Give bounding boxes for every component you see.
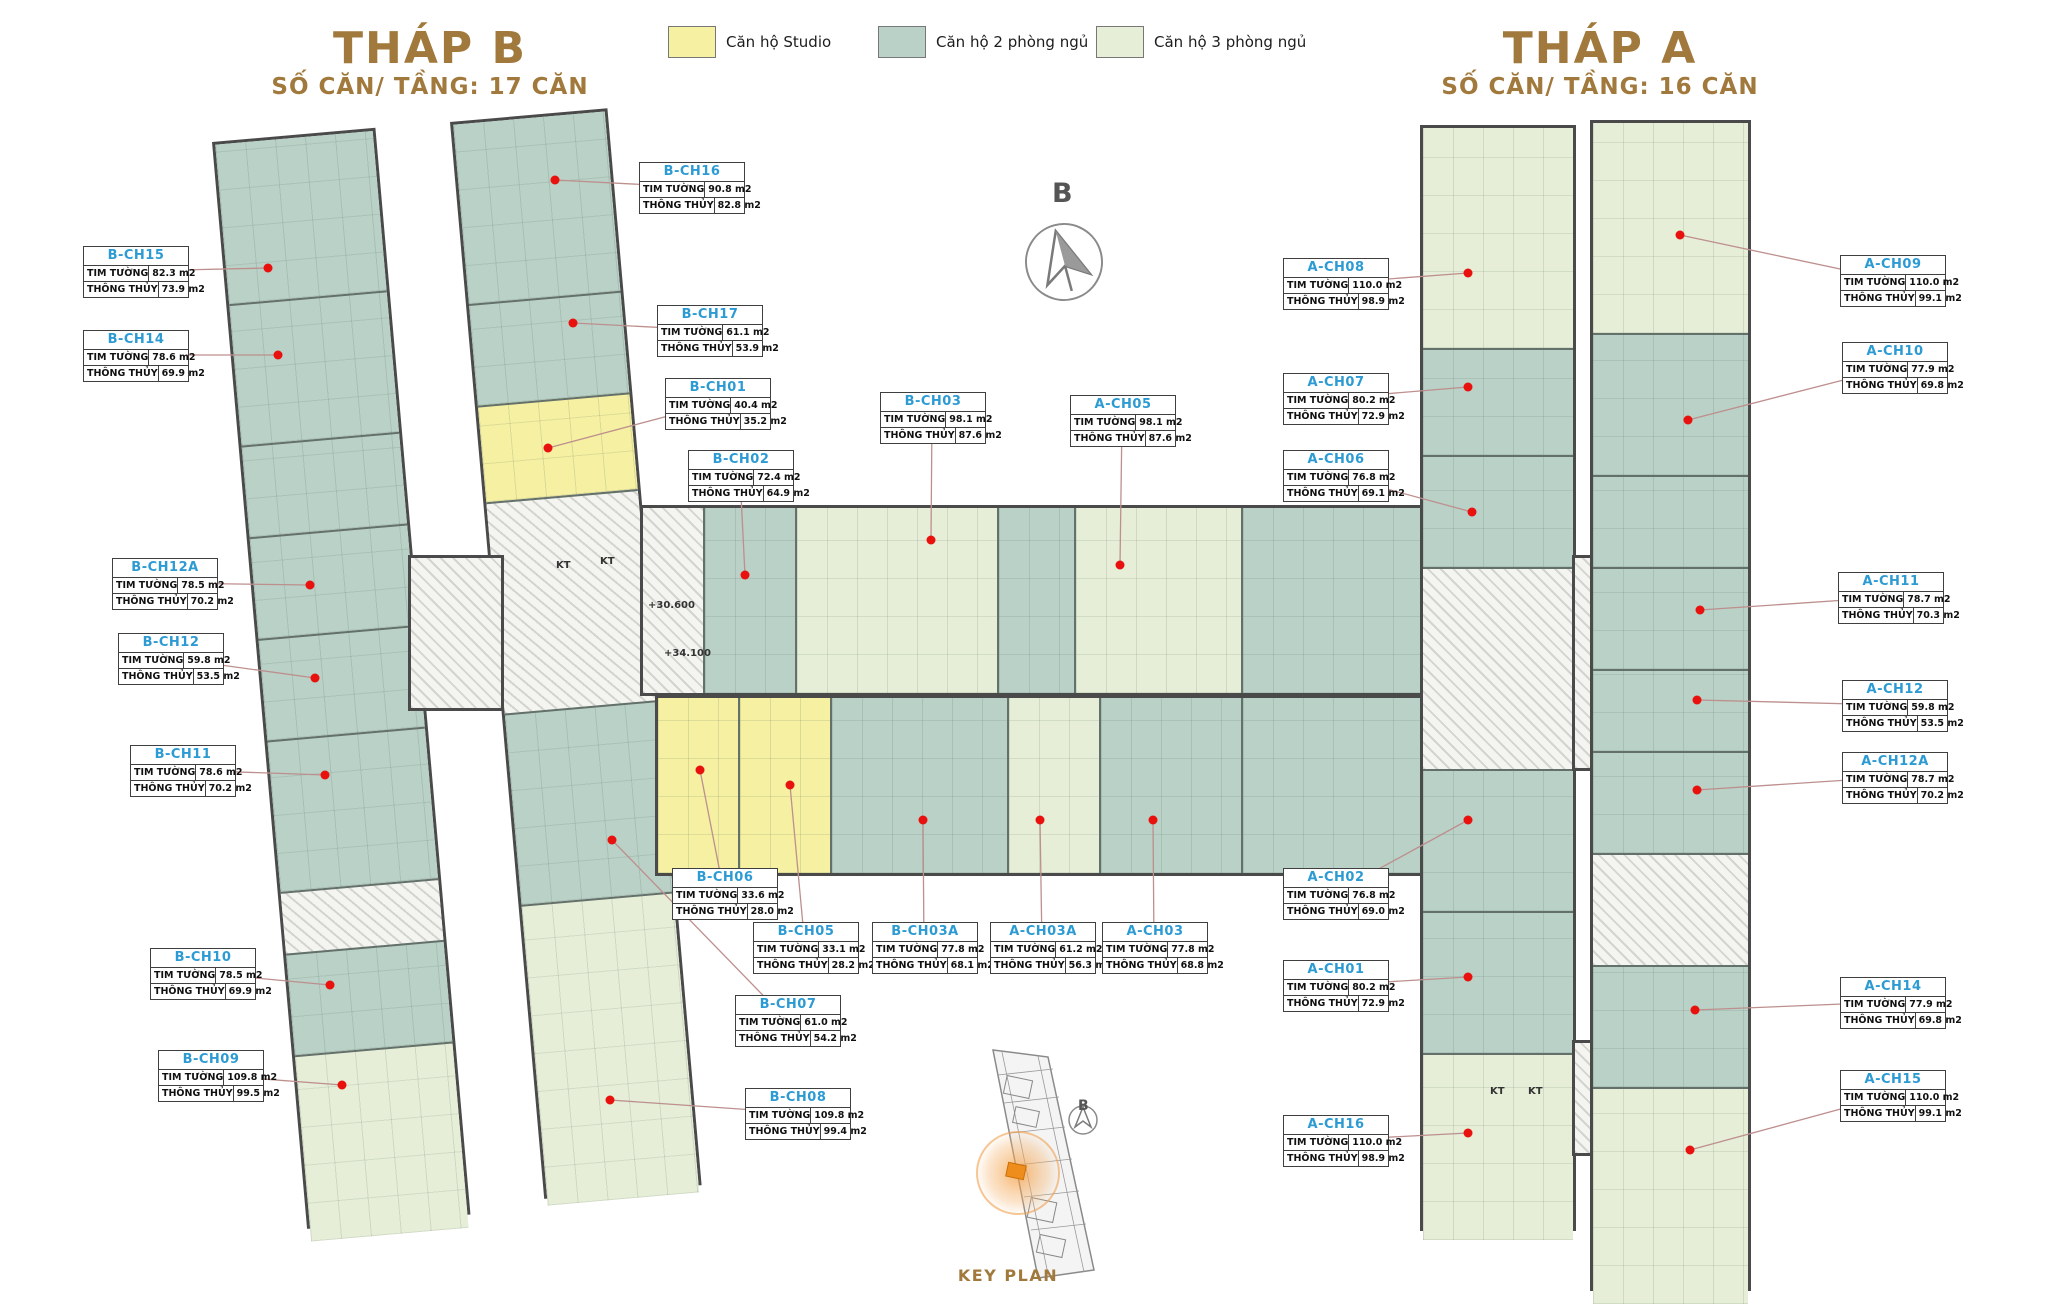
area-row-value: 110.0 m2: [1906, 1090, 1953, 1105]
unit-area-row: THÔNG THỦY69.9 m2: [84, 365, 188, 381]
area-row-label: THÔNG THỦY: [131, 781, 206, 796]
unit-dot-A-CH03A: [1036, 816, 1045, 825]
unit-label-B-CH02: B-CH02TIM TƯỜNG72.4 m2THÔNG THỦY64.9 m2: [688, 450, 794, 502]
unit-area-row: THÔNG THỦY64.9 m2: [689, 485, 793, 501]
unit-label-A-CH06: A-CH06TIM TƯỜNG76.8 m2THÔNG THỦY69.1 m2: [1283, 450, 1389, 502]
unit-id: B-CH02: [689, 451, 793, 469]
area-row-value: 110.0 m2: [1906, 275, 1953, 290]
unit-dot-B-CH12: [311, 674, 320, 683]
unit-id: B-CH14: [84, 331, 188, 349]
unit-area-row: THÔNG THỦY69.0 m2: [1284, 903, 1388, 919]
unit-label-B-CH12: B-CH12TIM TƯỜNG59.8 m2THÔNG THỦY53.5 m2: [118, 633, 224, 685]
area-row-label: THÔNG THỦY: [1841, 1013, 1916, 1028]
area-row-value: 99.5 m2: [234, 1086, 281, 1101]
area-row-value: 59.8 m2: [184, 653, 231, 668]
area-row-value: 61.1 m2: [723, 325, 770, 340]
area-row-label: TIM TƯỜNG: [1284, 980, 1349, 995]
area-row-label: TIM TƯỜNG: [1843, 772, 1908, 787]
area-row-label: TIM TƯỜNG: [1841, 997, 1906, 1012]
area-row-value: 69.8 m2: [1918, 378, 1965, 393]
area-row-value: 109.8 m2: [224, 1070, 271, 1085]
unit-label-B-CH07: B-CH07TIM TƯỜNG61.0 m2THÔNG THỦY54.2 m2: [735, 995, 841, 1047]
area-row-label: TIM TƯỜNG: [151, 968, 216, 983]
unit-id: B-CH07: [736, 996, 840, 1014]
unit-label-A-CH01: A-CH01TIM TƯỜNG80.2 m2THÔNG THỦY72.9 m2: [1283, 960, 1389, 1012]
unit-area-row: TIM TƯỜNG59.8 m2: [1843, 699, 1947, 715]
area-row-label: TIM TƯỜNG: [1843, 700, 1908, 715]
unit-area-row: TIM TƯỜNG110.0 m2: [1284, 277, 1388, 293]
unit-dot-A-CH11: [1696, 606, 1705, 615]
area-row-value: 82.8 m2: [715, 198, 762, 213]
unit-label-B-CH06: B-CH06TIM TƯỜNG33.6 m2THÔNG THỦY28.0 m2: [672, 868, 778, 920]
area-row-value: 80.2 m2: [1349, 980, 1396, 995]
unit-area-row: THÔNG THỦY72.9 m2: [1284, 995, 1388, 1011]
unit-id: B-CH03A: [873, 923, 977, 941]
unit-dot-B-CH06: [696, 766, 705, 775]
unit-id: A-CH14: [1841, 978, 1945, 996]
unit-label-A-CH03A: A-CH03ATIM TƯỜNG61.2 m2THÔNG THỦY56.3 m2: [990, 922, 1096, 974]
area-row-value: 70.2 m2: [188, 594, 235, 609]
tower-a-title-text: THÁP A: [1440, 26, 1760, 72]
unit-dot-B-CH01: [544, 444, 553, 453]
area-row-label: THÔNG THỦY: [113, 594, 188, 609]
unit-area-row: TIM TƯỜNG78.7 m2: [1839, 591, 1943, 607]
unit-id: B-CH15: [84, 247, 188, 265]
area-row-label: THÔNG THỦY: [1843, 378, 1918, 393]
unit-area-row: TIM TƯỜNG109.8 m2: [746, 1107, 850, 1123]
area-row-label: TIM TƯỜNG: [84, 266, 149, 281]
area-row-value: 73.9 m2: [159, 282, 206, 297]
unit-dot-B-CH05: [786, 781, 795, 790]
area-row-label: TIM TƯỜNG: [1103, 942, 1168, 957]
unit-label-A-CH15: A-CH15TIM TƯỜNG110.0 m2THÔNG THỦY99.1 m2: [1840, 1070, 1946, 1122]
area-row-value: 28.2 m2: [829, 958, 876, 973]
unit-area-row: TIM TƯỜNG59.8 m2: [119, 652, 223, 668]
legend-label: Căn hộ Studio: [726, 33, 831, 51]
area-row-label: TIM TƯỜNG: [1843, 362, 1908, 377]
legend-swatch: [878, 26, 926, 58]
area-row-value: 99.4 m2: [821, 1124, 868, 1139]
area-row-value: 53.5 m2: [1918, 716, 1965, 731]
area-row-value: 98.9 m2: [1359, 1151, 1406, 1166]
unit-label-B-CH05: B-CH05TIM TƯỜNG33.1 m2THÔNG THỦY28.2 m2: [753, 922, 859, 974]
unit-area-row: TIM TƯỜNG98.1 m2: [881, 411, 985, 427]
area-row-value: 72.4 m2: [754, 470, 801, 485]
unit-dot-A-CH01: [1464, 973, 1473, 982]
unit-dot-B-CH16: [551, 176, 560, 185]
unit-area-row: TIM TƯỜNG82.3 m2: [84, 265, 188, 281]
area-row-value: 69.9 m2: [159, 366, 206, 381]
unit-dot-A-CH16: [1464, 1129, 1473, 1138]
unit-area-row: TIM TƯỜNG90.8 m2: [640, 181, 744, 197]
unit-dot-A-CH06: [1468, 508, 1477, 517]
area-row-label: TIM TƯỜNG: [736, 1015, 801, 1030]
area-row-value: 35.2 m2: [741, 414, 788, 429]
area-row-value: 99.1 m2: [1916, 291, 1963, 306]
area-row-label: THÔNG THỦY: [1284, 294, 1359, 309]
unit-label-A-CH16: A-CH16TIM TƯỜNG110.0 m2THÔNG THỦY98.9 m2: [1283, 1115, 1389, 1167]
unit-dot-B-CH03A: [919, 816, 928, 825]
unit-id: B-CH16: [640, 163, 744, 181]
unit-area-row: TIM TƯỜNG77.9 m2: [1841, 996, 1945, 1012]
unit-dot-B-CH11: [321, 771, 330, 780]
unit-id: A-CH16: [1284, 1116, 1388, 1134]
area-row-value: 78.7 m2: [1908, 772, 1955, 787]
unit-dot-B-CH10: [326, 981, 335, 990]
area-row-value: 53.9 m2: [733, 341, 780, 356]
area-row-value: 78.7 m2: [1904, 592, 1951, 607]
unit-label-A-CH08: A-CH08TIM TƯỜNG110.0 m2THÔNG THỦY98.9 m2: [1283, 258, 1389, 310]
area-row-label: THÔNG THỦY: [1284, 904, 1359, 919]
area-row-value: 77.9 m2: [1906, 997, 1953, 1012]
unit-dot-B-CH12A: [306, 581, 315, 590]
unit-id: A-CH15: [1841, 1071, 1945, 1089]
area-row-label: TIM TƯỜNG: [1284, 278, 1349, 293]
area-row-label: THÔNG THỦY: [159, 1086, 234, 1101]
legend-item-1: Căn hộ 2 phòng ngủ: [878, 26, 1088, 58]
area-row-label: THÔNG THỦY: [689, 486, 764, 501]
unit-dot-A-CH05: [1116, 561, 1125, 570]
unit-area-row: THÔNG THỦY53.5 m2: [119, 668, 223, 684]
unit-dot-B-CH14: [274, 351, 283, 360]
area-row-label: THÔNG THỦY: [666, 414, 741, 429]
unit-label-B-CH09: B-CH09TIM TƯỜNG109.8 m2THÔNG THỦY99.5 m2: [158, 1050, 264, 1102]
area-row-label: TIM TƯỜNG: [159, 1070, 224, 1085]
unit-label-A-CH05: A-CH05TIM TƯỜNG98.1 m2THÔNG THỦY87.6 m2: [1070, 395, 1176, 447]
unit-area-row: TIM TƯỜNG78.6 m2: [84, 349, 188, 365]
area-row-label: TIM TƯỜNG: [1839, 592, 1904, 607]
unit-dot-B-CH17: [569, 319, 578, 328]
unit-label-A-CH03: A-CH03TIM TƯỜNG77.8 m2THÔNG THỦY68.8 m2: [1102, 922, 1208, 974]
unit-area-row: THÔNG THỦY68.8 m2: [1103, 957, 1207, 973]
unit-area-row: TIM TƯỜNG33.6 m2: [673, 887, 777, 903]
area-row-value: 78.6 m2: [149, 350, 196, 365]
unit-area-row: THÔNG THỦY70.3 m2: [1839, 607, 1943, 623]
area-row-label: THÔNG THỦY: [873, 958, 948, 973]
unit-area-row: TIM TƯỜNG78.5 m2: [113, 577, 217, 593]
legend-item-2: Căn hộ 3 phòng ngủ: [1096, 26, 1306, 58]
unit-id: A-CH03A: [991, 923, 1095, 941]
unit-dot-A-CH03: [1149, 816, 1158, 825]
unit-dot-B-CH15: [264, 264, 273, 273]
unit-label-A-CH14: A-CH14TIM TƯỜNG77.9 m2THÔNG THỦY69.8 m2: [1840, 977, 1946, 1029]
floorplan-stage: THÁP B SỐ CĂN/ TẦNG: 17 CĂN THÁP A SỐ CĂ…: [0, 0, 2048, 1302]
unit-label-B-CH10: B-CH10TIM TƯỜNG78.5 m2THÔNG THỦY69.9 m2: [150, 948, 256, 1000]
area-row-value: 77.9 m2: [1908, 362, 1955, 377]
area-row-value: 61.2 m2: [1056, 942, 1103, 957]
legend-swatch: [1096, 26, 1144, 58]
area-row-value: 80.2 m2: [1349, 393, 1396, 408]
unit-id: B-CH10: [151, 949, 255, 967]
unit-id: B-CH03: [881, 393, 985, 411]
unit-area-row: TIM TƯỜNG61.1 m2: [658, 324, 762, 340]
unit-area-row: TIM TƯỜNG98.1 m2: [1071, 414, 1175, 430]
unit-id: B-CH12: [119, 634, 223, 652]
area-row-value: 68.1 m2: [948, 958, 995, 973]
area-row-label: THÔNG THỦY: [640, 198, 715, 213]
unit-area-row: TIM TƯỜNG77.8 m2: [873, 941, 977, 957]
unit-area-row: TIM TƯỜNG110.0 m2: [1284, 1134, 1388, 1150]
legend-label: Căn hộ 3 phòng ngủ: [1154, 33, 1306, 51]
unit-label-B-CH01: B-CH01TIM TƯỜNG40.4 m2THÔNG THỦY35.2 m2: [665, 378, 771, 430]
unit-area-row: TIM TƯỜNG109.8 m2: [159, 1069, 263, 1085]
tower-a-subtitle: SỐ CĂN/ TẦNG: 16 CĂN: [1440, 74, 1760, 100]
unit-dot-B-CH07: [608, 836, 617, 845]
unit-dot-A-CH12A: [1693, 786, 1702, 795]
key-plan-label: KEY PLAN: [898, 1266, 1118, 1285]
unit-dot-B-CH03: [927, 536, 936, 545]
area-row-value: 109.8 m2: [811, 1108, 858, 1123]
area-row-label: TIM TƯỜNG: [1071, 415, 1136, 430]
unit-area-row: THÔNG THỦY98.9 m2: [1284, 293, 1388, 309]
area-row-value: 110.0 m2: [1349, 278, 1396, 293]
area-row-value: 90.8 m2: [705, 182, 752, 197]
unit-id: A-CH01: [1284, 961, 1388, 979]
unit-area-row: TIM TƯỜNG78.6 m2: [131, 764, 235, 780]
unit-area-row: THÔNG THỦY69.9 m2: [151, 983, 255, 999]
unit-area-row: TIM TƯỜNG61.2 m2: [991, 941, 1095, 957]
area-row-label: TIM TƯỜNG: [119, 653, 184, 668]
area-row-label: THÔNG THỦY: [1071, 431, 1146, 446]
legend-swatch: [668, 26, 716, 58]
unit-label-B-CH03A: B-CH03ATIM TƯỜNG77.8 m2THÔNG THỦY68.1 m2: [872, 922, 978, 974]
unit-label-A-CH09: A-CH09TIM TƯỜNG110.0 m2THÔNG THỦY99.1 m2: [1840, 255, 1946, 307]
unit-area-row: TIM TƯỜNG110.0 m2: [1841, 1089, 1945, 1105]
area-row-value: 72.9 m2: [1359, 996, 1406, 1011]
tower-b-title: THÁP B SỐ CĂN/ TẦNG: 17 CĂN: [270, 26, 590, 100]
area-row-value: 78.5 m2: [216, 968, 263, 983]
area-row-value: 72.9 m2: [1359, 409, 1406, 424]
unit-area-row: THÔNG THỦY98.9 m2: [1284, 1150, 1388, 1166]
unit-dot-A-CH02: [1464, 816, 1473, 825]
unit-dot-A-CH15: [1686, 1146, 1695, 1155]
unit-area-row: THÔNG THỦY69.1 m2: [1284, 485, 1388, 501]
unit-dot-A-CH08: [1464, 269, 1473, 278]
unit-dot-B-CH09: [338, 1081, 347, 1090]
area-row-label: TIM TƯỜNG: [113, 578, 178, 593]
unit-id: A-CH03: [1103, 923, 1207, 941]
area-row-label: THÔNG THỦY: [881, 428, 956, 443]
unit-dot-A-CH12: [1693, 696, 1702, 705]
unit-label-A-CH12: A-CH12TIM TƯỜNG59.8 m2THÔNG THỦY53.5 m2: [1842, 680, 1948, 732]
unit-area-row: THÔNG THỦY99.1 m2: [1841, 290, 1945, 306]
unit-area-row: THÔNG THỦY73.9 m2: [84, 281, 188, 297]
unit-area-row: TIM TƯỜNG76.8 m2: [1284, 887, 1388, 903]
unit-area-row: TIM TƯỜNG78.7 m2: [1843, 771, 1947, 787]
unit-dot-B-CH02: [741, 571, 750, 580]
unit-area-row: THÔNG THỦY53.9 m2: [658, 340, 762, 356]
unit-area-row: THÔNG THỦY56.3 m2: [991, 957, 1095, 973]
area-row-label: THÔNG THỦY: [1843, 788, 1918, 803]
area-row-label: TIM TƯỜNG: [666, 398, 731, 413]
area-row-label: TIM TƯỜNG: [1841, 275, 1906, 290]
area-row-label: TIM TƯỜNG: [873, 942, 938, 957]
area-row-label: THÔNG THỦY: [1841, 291, 1916, 306]
legend-label: Căn hộ 2 phòng ngủ: [936, 33, 1088, 51]
area-row-label: TIM TƯỜNG: [754, 942, 819, 957]
area-row-value: 69.0 m2: [1359, 904, 1406, 919]
area-row-label: THÔNG THỦY: [1284, 486, 1359, 501]
unit-id: B-CH11: [131, 746, 235, 764]
unit-id: A-CH02: [1284, 869, 1388, 887]
area-row-value: 33.1 m2: [819, 942, 866, 957]
unit-id: B-CH12A: [113, 559, 217, 577]
area-row-label: THÔNG THỦY: [1841, 1106, 1916, 1121]
area-row-label: THÔNG THỦY: [746, 1124, 821, 1139]
unit-dot-A-CH14: [1691, 1006, 1700, 1015]
area-row-label: TIM TƯỜNG: [658, 325, 723, 340]
area-row-label: TIM TƯỜNG: [1841, 1090, 1906, 1105]
area-row-label: THÔNG THỦY: [151, 984, 226, 999]
leader-lines-layer: [0, 0, 2048, 1302]
unit-area-row: TIM TƯỜNG80.2 m2: [1284, 392, 1388, 408]
unit-area-row: THÔNG THỦY69.8 m2: [1843, 377, 1947, 393]
unit-area-row: THÔNG THỦY87.6 m2: [1071, 430, 1175, 446]
unit-area-row: THÔNG THỦY99.4 m2: [746, 1123, 850, 1139]
area-row-value: 69.9 m2: [226, 984, 273, 999]
area-row-label: TIM TƯỜNG: [84, 350, 149, 365]
area-row-label: THÔNG THỦY: [1843, 716, 1918, 731]
area-row-value: 40.4 m2: [731, 398, 778, 413]
unit-area-row: TIM TƯỜNG76.8 m2: [1284, 469, 1388, 485]
area-row-label: TIM TƯỜNG: [640, 182, 705, 197]
area-row-label: TIM TƯỜNG: [1284, 393, 1349, 408]
unit-id: B-CH09: [159, 1051, 263, 1069]
unit-id: A-CH10: [1843, 343, 1947, 361]
unit-label-B-CH17: B-CH17TIM TƯỜNG61.1 m2THÔNG THỦY53.9 m2: [657, 305, 763, 357]
unit-label-A-CH12A: A-CH12ATIM TƯỜNG78.7 m2THÔNG THỦY70.2 m2: [1842, 752, 1948, 804]
unit-id: A-CH11: [1839, 573, 1943, 591]
area-row-label: THÔNG THỦY: [658, 341, 733, 356]
unit-area-row: THÔNG THỦY69.8 m2: [1841, 1012, 1945, 1028]
unit-label-B-CH12A: B-CH12ATIM TƯỜNG78.5 m2THÔNG THỦY70.2 m2: [112, 558, 218, 610]
tower-b-subtitle: SỐ CĂN/ TẦNG: 17 CĂN: [270, 74, 590, 100]
area-row-value: 87.6 m2: [1146, 431, 1193, 446]
area-row-value: 77.8 m2: [1168, 942, 1215, 957]
unit-area-row: TIM TƯỜNG61.0 m2: [736, 1014, 840, 1030]
key-plan-compass-letter: B: [1078, 1098, 1089, 1114]
unit-area-row: THÔNG THỦY53.5 m2: [1843, 715, 1947, 731]
unit-area-row: TIM TƯỜNG110.0 m2: [1841, 274, 1945, 290]
unit-area-row: THÔNG THỦY54.2 m2: [736, 1030, 840, 1046]
unit-id: A-CH09: [1841, 256, 1945, 274]
unit-label-B-CH14: B-CH14TIM TƯỜNG78.6 m2THÔNG THỦY69.9 m2: [83, 330, 189, 382]
area-row-value: 70.2 m2: [1918, 788, 1965, 803]
area-row-value: 54.2 m2: [811, 1031, 858, 1046]
area-row-value: 64.9 m2: [764, 486, 811, 501]
unit-id: A-CH07: [1284, 374, 1388, 392]
unit-area-row: THÔNG THỦY28.2 m2: [754, 957, 858, 973]
area-row-label: TIM TƯỜNG: [991, 942, 1056, 957]
area-row-value: 33.6 m2: [738, 888, 785, 903]
unit-area-row: THÔNG THỦY99.1 m2: [1841, 1105, 1945, 1121]
unit-area-row: TIM TƯỜNG33.1 m2: [754, 941, 858, 957]
area-row-value: 68.8 m2: [1178, 958, 1225, 973]
area-row-label: THÔNG THỦY: [1103, 958, 1178, 973]
area-row-label: THÔNG THỦY: [84, 282, 159, 297]
area-row-label: TIM TƯỜNG: [689, 470, 754, 485]
unit-area-row: THÔNG THỦY82.8 m2: [640, 197, 744, 213]
area-row-label: THÔNG THỦY: [84, 366, 159, 381]
area-row-value: 59.8 m2: [1908, 700, 1955, 715]
area-row-label: THÔNG THỦY: [1284, 409, 1359, 424]
unit-id: B-CH01: [666, 379, 770, 397]
unit-dot-A-CH10: [1684, 416, 1693, 425]
area-row-label: THÔNG THỦY: [1284, 1151, 1359, 1166]
area-row-value: 98.9 m2: [1359, 294, 1406, 309]
area-row-value: 53.5 m2: [194, 669, 241, 684]
area-row-value: 76.8 m2: [1349, 470, 1396, 485]
area-row-label: THÔNG THỦY: [1284, 996, 1359, 1011]
unit-area-row: THÔNG THỦY28.0 m2: [673, 903, 777, 919]
unit-label-B-CH11: B-CH11TIM TƯỜNG78.6 m2THÔNG THỦY70.2 m2: [130, 745, 236, 797]
unit-area-row: TIM TƯỜNG80.2 m2: [1284, 979, 1388, 995]
area-row-value: 70.3 m2: [1914, 608, 1961, 623]
area-row-value: 76.8 m2: [1349, 888, 1396, 903]
unit-label-A-CH10: A-CH10TIM TƯỜNG77.9 m2THÔNG THỦY69.8 m2: [1842, 342, 1948, 394]
unit-label-B-CH15: B-CH15TIM TƯỜNG82.3 m2THÔNG THỦY73.9 m2: [83, 246, 189, 298]
area-row-value: 99.1 m2: [1916, 1106, 1963, 1121]
unit-label-B-CH16: B-CH16TIM TƯỜNG90.8 m2THÔNG THỦY82.8 m2: [639, 162, 745, 214]
unit-area-row: THÔNG THỦY70.2 m2: [131, 780, 235, 796]
unit-area-row: TIM TƯỜNG72.4 m2: [689, 469, 793, 485]
unit-id: A-CH06: [1284, 451, 1388, 469]
unit-id: A-CH05: [1071, 396, 1175, 414]
area-row-label: TIM TƯỜNG: [673, 888, 738, 903]
area-row-label: TIM TƯỜNG: [131, 765, 196, 780]
tower-b-title-text: THÁP B: [270, 26, 590, 72]
area-row-value: 87.6 m2: [956, 428, 1003, 443]
area-row-value: 61.0 m2: [801, 1015, 848, 1030]
area-row-label: TIM TƯỜNG: [746, 1108, 811, 1123]
area-row-value: 77.8 m2: [938, 942, 985, 957]
unit-area-row: THÔNG THỦY68.1 m2: [873, 957, 977, 973]
legend-item-0: Căn hộ Studio: [668, 26, 831, 58]
compass-icon: [1004, 200, 1124, 320]
unit-area-row: THÔNG THỦY87.6 m2: [881, 427, 985, 443]
unit-dot-A-CH07: [1464, 383, 1473, 392]
unit-label-B-CH03: B-CH03TIM TƯỜNG98.1 m2THÔNG THỦY87.6 m2: [880, 392, 986, 444]
unit-area-row: THÔNG THỦY70.2 m2: [1843, 787, 1947, 803]
tower-a-title: THÁP A SỐ CĂN/ TẦNG: 16 CĂN: [1440, 26, 1760, 100]
area-row-value: 69.1 m2: [1359, 486, 1406, 501]
area-row-label: TIM TƯỜNG: [1284, 470, 1349, 485]
area-row-value: 78.5 m2: [178, 578, 225, 593]
unit-label-A-CH11: A-CH11TIM TƯỜNG78.7 m2THÔNG THỦY70.3 m2: [1838, 572, 1944, 624]
unit-id: B-CH05: [754, 923, 858, 941]
area-row-label: TIM TƯỜNG: [1284, 888, 1349, 903]
unit-label-A-CH07: A-CH07TIM TƯỜNG80.2 m2THÔNG THỦY72.9 m2: [1283, 373, 1389, 425]
unit-area-row: TIM TƯỜNG77.9 m2: [1843, 361, 1947, 377]
area-row-label: THÔNG THỦY: [119, 669, 194, 684]
area-row-label: TIM TƯỜNG: [881, 412, 946, 427]
area-row-value: 28.0 m2: [748, 904, 795, 919]
area-row-label: THÔNG THỦY: [736, 1031, 811, 1046]
unit-area-row: THÔNG THỦY35.2 m2: [666, 413, 770, 429]
unit-id: B-CH06: [673, 869, 777, 887]
unit-area-row: TIM TƯỜNG40.4 m2: [666, 397, 770, 413]
area-row-value: 82.3 m2: [149, 266, 196, 281]
unit-area-row: TIM TƯỜNG78.5 m2: [151, 967, 255, 983]
area-row-value: 69.8 m2: [1916, 1013, 1963, 1028]
unit-id: B-CH17: [658, 306, 762, 324]
area-row-label: THÔNG THỦY: [991, 958, 1066, 973]
area-row-label: TIM TƯỜNG: [1284, 1135, 1349, 1150]
unit-area-row: THÔNG THỦY70.2 m2: [113, 593, 217, 609]
area-row-label: THÔNG THỦY: [754, 958, 829, 973]
area-row-value: 98.1 m2: [946, 412, 993, 427]
area-row-label: THÔNG THỦY: [673, 904, 748, 919]
